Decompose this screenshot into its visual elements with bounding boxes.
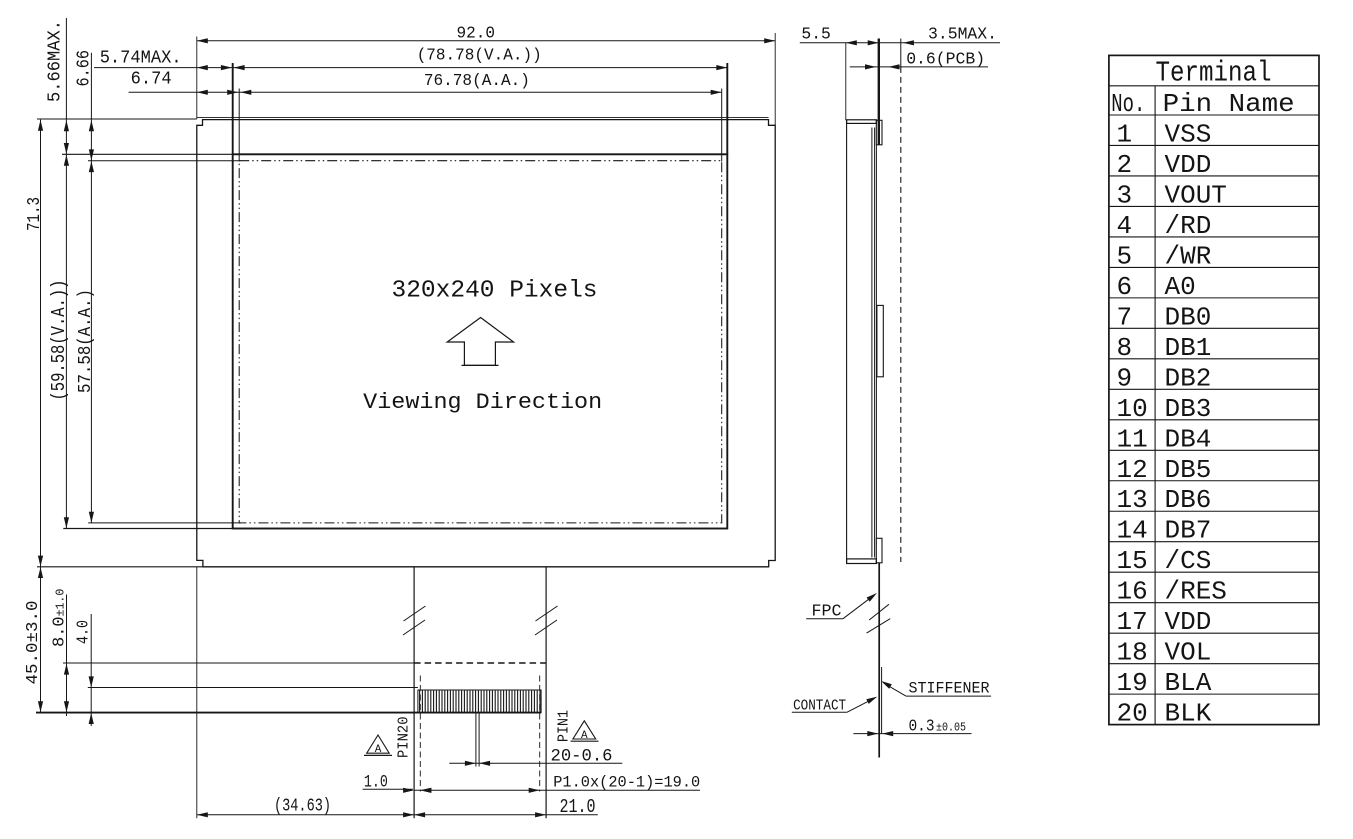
svg-text:DB6: DB6	[1165, 485, 1212, 515]
svg-text:±0.05: ±0.05	[936, 720, 966, 734]
svg-text:21.0: 21.0	[560, 796, 596, 818]
svg-text:17: 17	[1117, 607, 1148, 637]
svg-text:VOL: VOL	[1165, 638, 1212, 668]
svg-text:20-0.6: 20-0.6	[551, 747, 613, 767]
svg-text:12: 12	[1117, 455, 1148, 485]
svg-text:20: 20	[1117, 699, 1148, 729]
svg-text:4.0: 4.0	[75, 620, 94, 644]
svg-text:3.5MAX.: 3.5MAX.	[928, 26, 997, 45]
svg-text:/WR: /WR	[1165, 241, 1212, 271]
svg-text:STIFFENER: STIFFENER	[909, 680, 990, 698]
svg-text:VSS: VSS	[1165, 119, 1212, 149]
svg-text:45.0±3.0: 45.0±3.0	[24, 601, 43, 685]
svg-text:No.: No.	[1111, 89, 1145, 119]
svg-text:0.6(PCB): 0.6(PCB)	[906, 51, 985, 70]
svg-text:15: 15	[1117, 546, 1148, 576]
svg-text:5.5: 5.5	[801, 26, 830, 45]
svg-text:VOUT: VOUT	[1165, 180, 1227, 210]
svg-text:DB7: DB7	[1165, 516, 1212, 546]
svg-text:10: 10	[1117, 394, 1148, 424]
svg-text:6.66: 6.66	[75, 50, 95, 87]
svg-text:Pin Name: Pin Name	[1163, 89, 1295, 119]
svg-text:18: 18	[1117, 638, 1148, 668]
svg-text:8: 8	[1117, 333, 1133, 363]
svg-text:DB5: DB5	[1165, 455, 1212, 485]
svg-text:92.0: 92.0	[457, 25, 496, 44]
svg-text:9: 9	[1117, 363, 1133, 393]
svg-text:DB0: DB0	[1165, 302, 1212, 332]
svg-text:DB4: DB4	[1165, 424, 1212, 454]
svg-text:/CS: /CS	[1165, 546, 1212, 576]
svg-text:Terminal: Terminal	[1156, 57, 1272, 90]
svg-text:/RD: /RD	[1165, 211, 1212, 241]
svg-text:(59.58(V.A.)): (59.58(V.A.))	[48, 280, 70, 401]
svg-text:5: 5	[1117, 241, 1133, 271]
svg-text:2: 2	[1117, 150, 1133, 180]
svg-text:1.0: 1.0	[364, 773, 388, 793]
svg-text:DB3: DB3	[1165, 394, 1212, 424]
svg-text:76.78(A.A.): 76.78(A.A.)	[424, 72, 530, 91]
svg-text:6: 6	[1117, 272, 1133, 302]
svg-text:A: A	[375, 744, 382, 756]
svg-text:A: A	[581, 730, 588, 742]
svg-text:57.58(A.A.): 57.58(A.A.)	[76, 289, 96, 393]
svg-text:VDD: VDD	[1165, 607, 1212, 637]
svg-text:BLA: BLA	[1165, 668, 1212, 698]
svg-text:8.0±1.0: 8.0±1.0	[51, 589, 70, 647]
svg-text:A0: A0	[1165, 272, 1196, 302]
svg-text:14: 14	[1117, 516, 1148, 546]
svg-text:3: 3	[1117, 180, 1133, 210]
svg-text:4: 4	[1117, 211, 1133, 241]
svg-text:0.3: 0.3	[909, 718, 935, 737]
svg-text:6.74: 6.74	[131, 70, 172, 90]
svg-text:DB2: DB2	[1165, 363, 1212, 393]
svg-text:(78.78(V.A.)): (78.78(V.A.))	[417, 47, 542, 66]
svg-text:5.66MAX.: 5.66MAX.	[46, 20, 66, 102]
svg-text:1: 1	[1117, 119, 1133, 149]
svg-text:PIN1: PIN1	[556, 710, 573, 742]
svg-text:(34.63): (34.63)	[274, 797, 331, 817]
svg-text:Viewing Direction: Viewing Direction	[363, 389, 602, 415]
svg-text:/RES: /RES	[1165, 577, 1227, 607]
svg-text:7: 7	[1117, 302, 1133, 332]
svg-text:71.3: 71.3	[25, 197, 45, 231]
svg-text:11: 11	[1117, 424, 1148, 454]
svg-text:5.74MAX.: 5.74MAX.	[100, 49, 182, 69]
svg-text:13: 13	[1117, 485, 1148, 515]
svg-text:16: 16	[1117, 577, 1148, 607]
svg-text:320x240 Pixels: 320x240 Pixels	[392, 278, 598, 305]
svg-text:P1.0x(20-1)=19.0: P1.0x(20-1)=19.0	[553, 774, 700, 792]
svg-text:PIN20: PIN20	[396, 717, 413, 759]
svg-text:VDD: VDD	[1165, 150, 1212, 180]
svg-text:DB1: DB1	[1165, 333, 1212, 363]
svg-text:BLK: BLK	[1165, 699, 1212, 729]
svg-text:19: 19	[1117, 668, 1148, 698]
